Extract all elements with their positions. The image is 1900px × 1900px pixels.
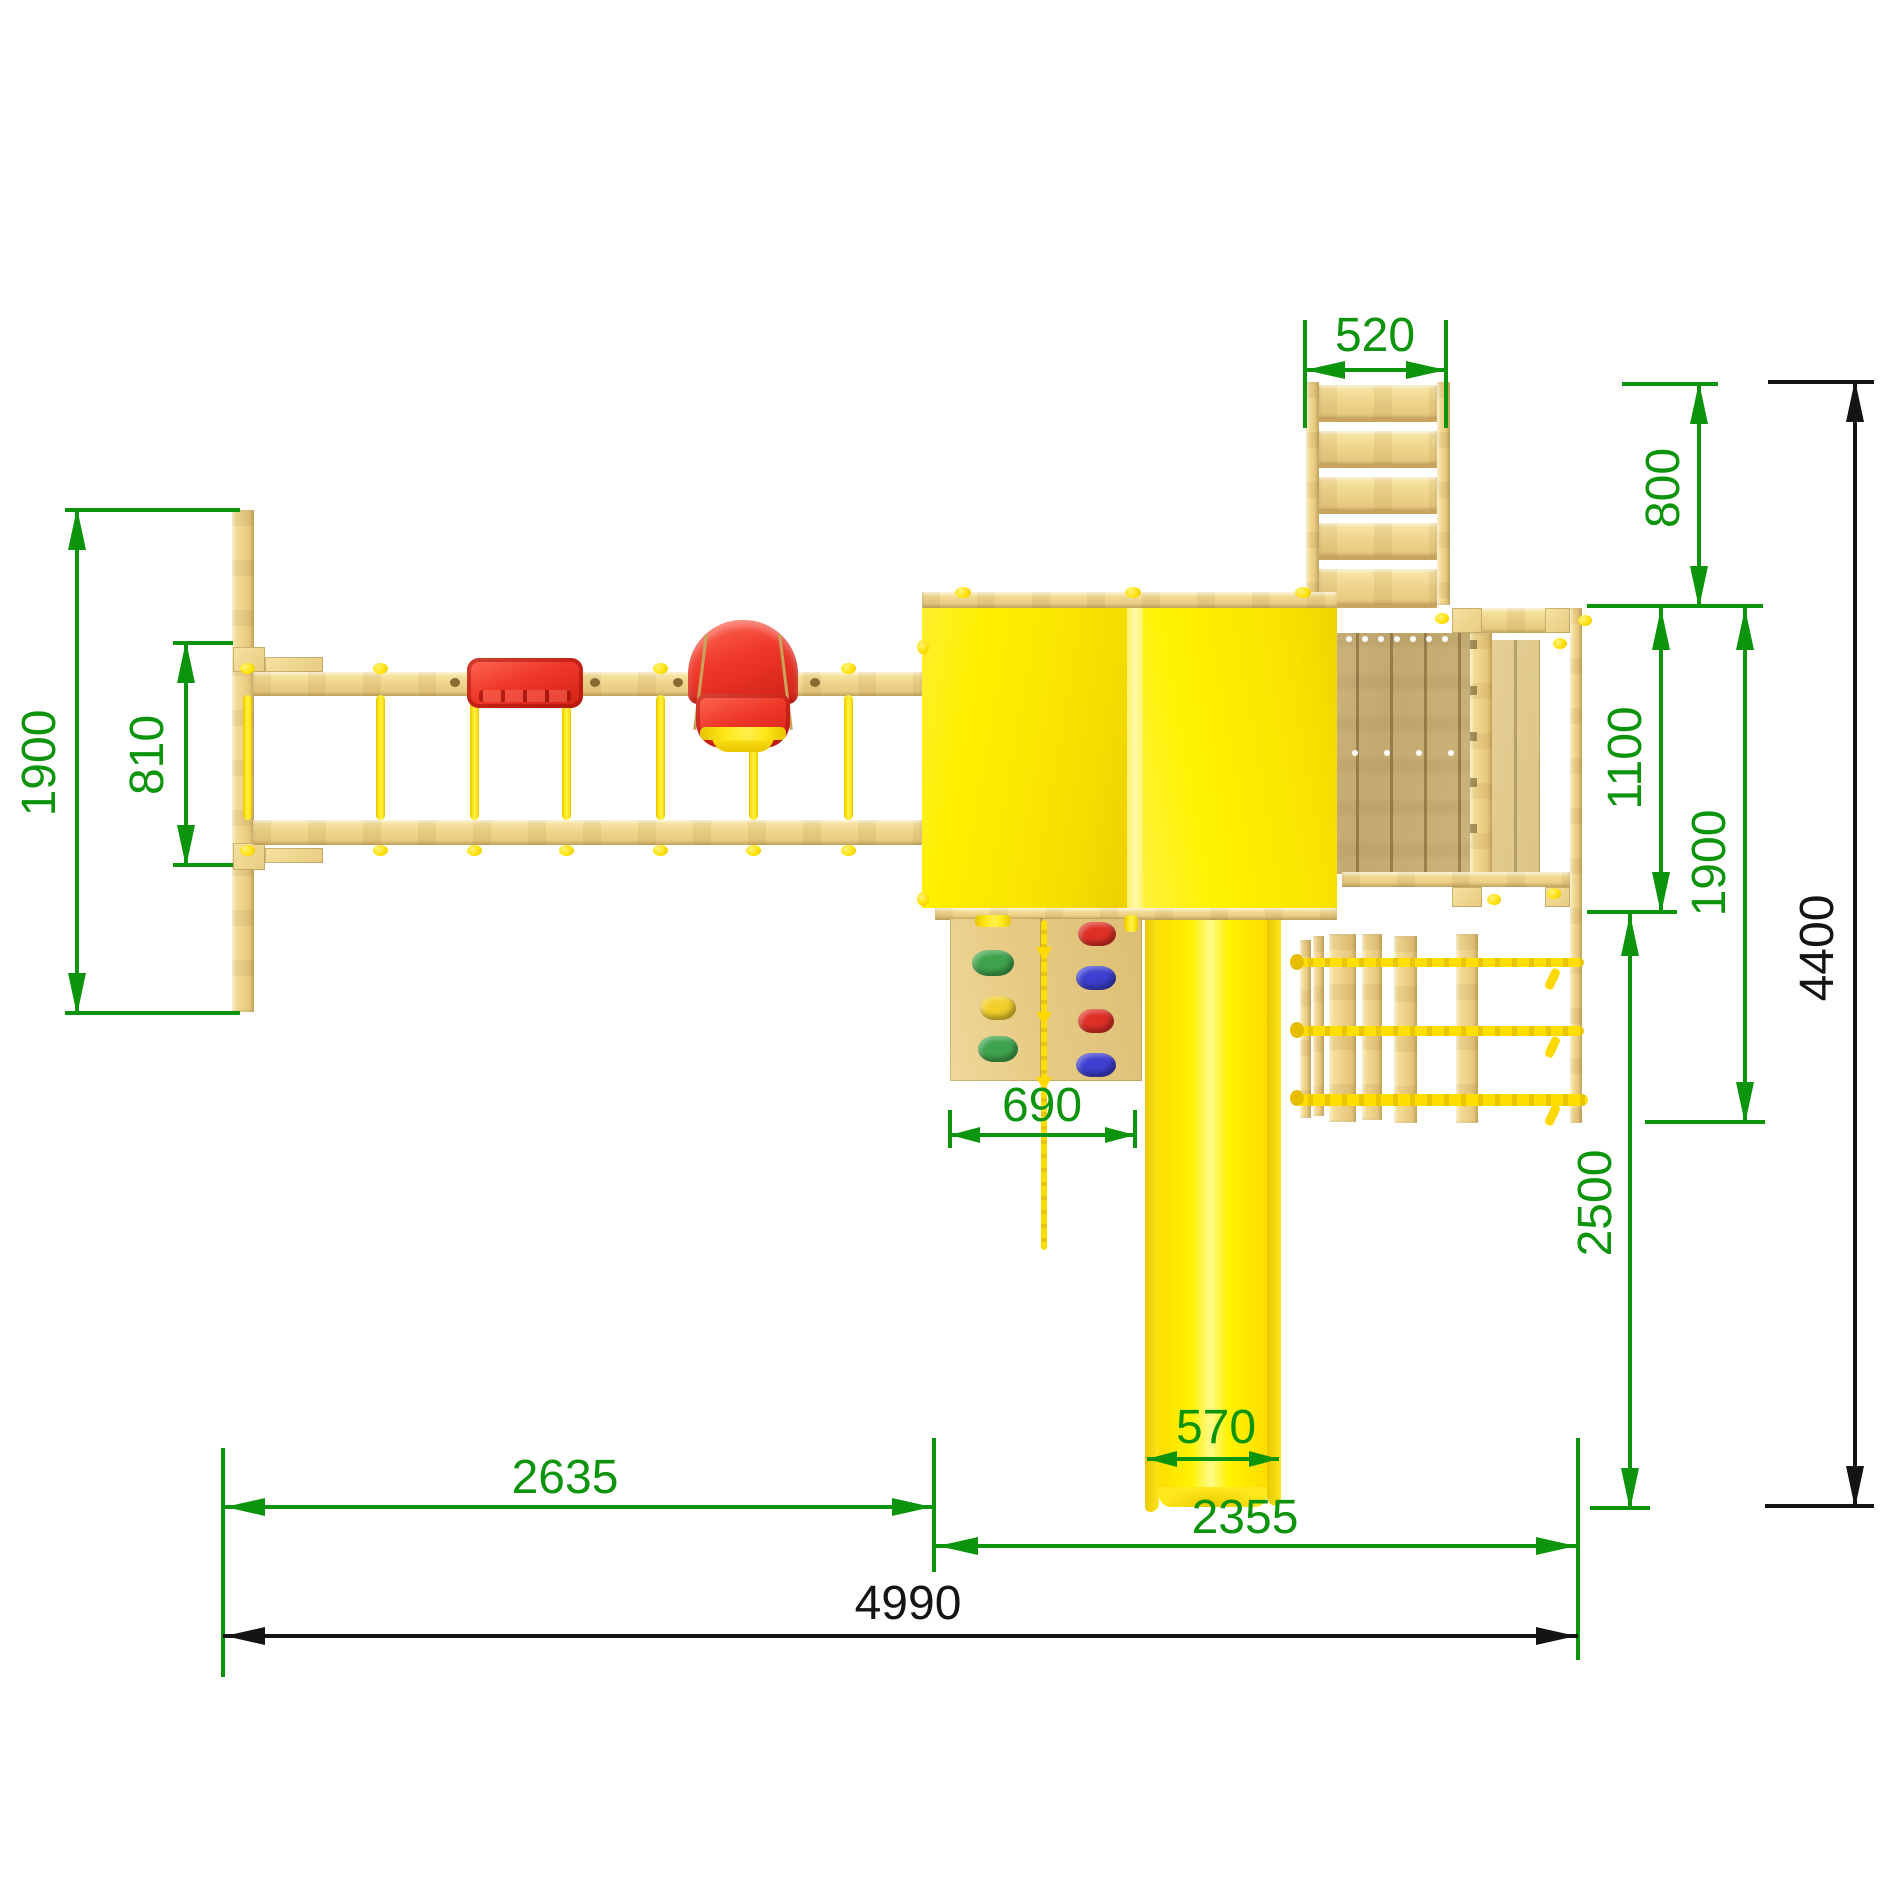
rope-knot [1290, 1090, 1304, 1106]
extension-line [1590, 1506, 1650, 1510]
arrow-right-icon [1536, 1627, 1576, 1645]
deck-screw [1384, 750, 1390, 756]
dimension-label: 520 [1335, 312, 1415, 360]
arrow-right-icon [892, 1498, 932, 1516]
climbing-hold-green [972, 950, 1014, 976]
dimension-line [223, 1634, 1578, 1638]
deck-screw [1394, 636, 1400, 642]
rope-knot [1036, 1012, 1052, 1026]
rope-knot [1544, 1035, 1561, 1059]
swing-rung [470, 695, 479, 820]
extension-line [1645, 1120, 1765, 1124]
balcony-bottom-beam [1342, 872, 1570, 887]
arrow-up-icon [68, 508, 86, 550]
roof-panel-right [1143, 608, 1337, 908]
net-rope [1296, 1094, 1588, 1106]
beam-hole [450, 678, 460, 687]
deck-screw [1442, 636, 1448, 642]
beam-hole [810, 678, 820, 687]
swing-rung [844, 695, 853, 820]
dimension-label: 810 [124, 715, 172, 795]
dimension-line [223, 1505, 934, 1509]
rope-knot [1290, 1022, 1304, 1038]
swing-rung [376, 695, 385, 820]
net-rope [1296, 958, 1584, 967]
arrow-left-icon [938, 1537, 978, 1555]
dimension-line [1659, 608, 1663, 914]
bolt-cap [917, 640, 929, 654]
bolt-cap [1578, 615, 1592, 626]
arrow-up-icon [1690, 382, 1708, 424]
bolt-cap [1435, 613, 1449, 624]
climbing-hold-blue [1076, 966, 1116, 990]
arrow-right-icon [1536, 1537, 1576, 1555]
deck-screw [1448, 750, 1454, 756]
balcony-post [1452, 608, 1482, 633]
ladder-rung [1319, 385, 1437, 422]
swing-bracket-step [265, 848, 323, 863]
bolt-cap [841, 845, 856, 856]
climbing-hold-yellow [980, 996, 1016, 1020]
bolt-cap [1487, 894, 1501, 905]
arrow-up-icon [177, 641, 195, 683]
arrow-down-icon [1621, 1468, 1639, 1510]
arrow-down-icon [1736, 1082, 1754, 1124]
bolt-cap [559, 845, 574, 856]
deck-screw [1362, 636, 1368, 642]
arrow-down-icon [1652, 872, 1670, 914]
extension-line [65, 508, 240, 512]
climbing-hold-red [1078, 922, 1116, 946]
dimension-line [1853, 380, 1857, 1508]
net-rope [1296, 1026, 1584, 1036]
bolt-cap [373, 663, 388, 674]
swing-beam-bottom [253, 820, 922, 845]
extension-line [1765, 1504, 1874, 1508]
dimension-label: 800 [1640, 448, 1688, 528]
dimension-label: 690 [1002, 1082, 1082, 1130]
extension-line [1576, 1438, 1580, 1660]
ladder-rung [1319, 431, 1437, 468]
dimension-label: 1900 [16, 710, 64, 817]
climbing-hold-green [978, 1036, 1018, 1062]
ladder-rung [1319, 523, 1437, 560]
bolt-cap [240, 845, 255, 856]
arrow-down-icon [1846, 1466, 1864, 1508]
arrow-left-icon [1147, 1451, 1177, 1467]
beam-hole [590, 678, 600, 687]
ladder-rung [1319, 477, 1437, 514]
arrow-down-icon [1690, 566, 1708, 608]
bolt-cap [746, 845, 761, 856]
bolt-cap [1295, 587, 1311, 598]
arrow-left-icon [1305, 361, 1345, 379]
slide-edge-right [1267, 920, 1281, 1506]
playground-top-view-drawing: 1900 810 520 800 1100 [0, 0, 1900, 1900]
swing-rung [243, 695, 252, 820]
extension-line [65, 1011, 240, 1015]
baby-swing-t-bar [700, 727, 786, 740]
dimension-label: 2500 [1572, 1150, 1620, 1257]
balcony-post [1545, 608, 1570, 633]
dimension-label: 2355 [1192, 1494, 1299, 1542]
dimension-label: 4990 [855, 1580, 962, 1628]
bolt-cap [841, 663, 856, 674]
climbing-hold-red [1078, 1009, 1114, 1033]
bolt-cap [240, 663, 255, 674]
arrow-down-icon [177, 825, 195, 867]
wall-bracket [1124, 915, 1138, 932]
rope-knot [1544, 1103, 1561, 1127]
flat-swing-seat-ridges [479, 690, 571, 702]
ladder-rail-left [1306, 382, 1319, 605]
arrow-left-icon [225, 1627, 265, 1645]
arrow-down-icon [68, 973, 86, 1015]
deck-screw [1416, 750, 1422, 756]
slide-edge-left [1145, 920, 1159, 1512]
bolt-cap [1125, 587, 1141, 598]
bolt-cap [1547, 888, 1561, 899]
dimension-label: 1900 [1686, 810, 1734, 917]
deck-screw [1352, 750, 1358, 756]
climbing-hold-blue [1076, 1053, 1116, 1077]
deck-screw [1378, 636, 1384, 642]
bolt-cap [917, 892, 929, 906]
dimension-label: 570 [1176, 1404, 1256, 1452]
dimension-label: 1100 [1602, 706, 1650, 809]
bolt-cap [1553, 638, 1567, 649]
deck-screw [1346, 636, 1352, 642]
arrow-right-icon [1105, 1127, 1135, 1143]
bolt-cap [653, 663, 668, 674]
deck-rail-hinges [1470, 640, 1477, 868]
balcony-post [1452, 887, 1482, 907]
swing-rung [656, 695, 665, 820]
dimension-label: 4400 [1794, 895, 1842, 1002]
roof-panel-left [922, 608, 1127, 908]
platform-deck-side [1492, 640, 1540, 874]
deck-screw [1426, 636, 1432, 642]
extension-line [932, 1438, 936, 1572]
arrow-up-icon [1621, 914, 1639, 956]
swing-bracket-step [265, 657, 323, 672]
balcony-side-rail [1570, 608, 1582, 1123]
bolt-cap [955, 587, 971, 598]
bolt-cap [467, 845, 482, 856]
arrow-up-icon [1846, 380, 1864, 422]
arrow-up-icon [1652, 608, 1670, 650]
rope-knot [1036, 947, 1052, 961]
swing-rung [562, 695, 571, 820]
rope-knot [1290, 954, 1304, 970]
arrow-left-icon [225, 1498, 265, 1516]
deck-screw [1410, 636, 1416, 642]
bolt-cap [653, 845, 668, 856]
roof-ridge-stripe [1127, 608, 1143, 908]
beam-hole [673, 678, 683, 687]
bolt-cap [373, 845, 388, 856]
arrow-left-icon [950, 1127, 980, 1143]
dimension-label: 2635 [512, 1454, 619, 1502]
wall-bracket [975, 915, 1011, 927]
dimension-line [936, 1544, 1580, 1548]
dimension-line [1743, 608, 1747, 1124]
dimension-line [75, 508, 79, 1015]
swing-beam-top [253, 672, 922, 696]
rope-knot [1544, 967, 1561, 991]
arrow-up-icon [1736, 608, 1754, 650]
arrow-right-icon [1406, 361, 1446, 379]
dimension-line [1628, 914, 1632, 1510]
